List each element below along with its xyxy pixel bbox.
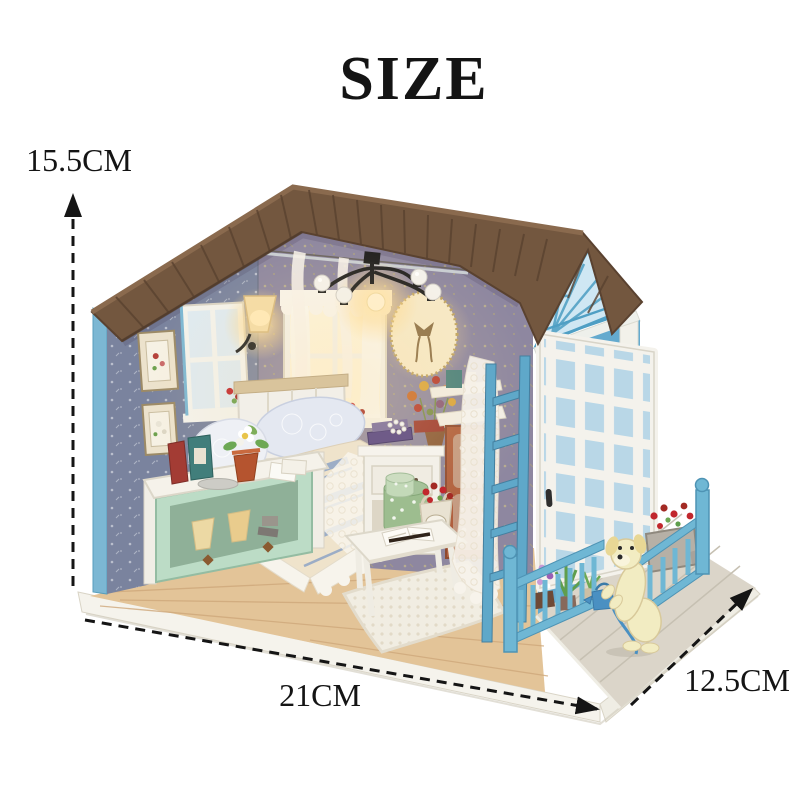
left-wall-edge-trim [93,308,107,594]
width-dimension-label: 21CM [279,677,361,713]
height-dimension-label: 15.5CM [26,142,132,178]
door-handle [545,489,552,507]
size-title: SIZE [339,45,488,113]
product-size-diagram: SIZE 15.5CM 21CM 12.5CM [0,0,800,800]
size-diagram-canvas: SIZE 15.5CM 21CM 12.5CM [0,0,800,800]
depth-dimension-label: 12.5CM [684,662,790,698]
